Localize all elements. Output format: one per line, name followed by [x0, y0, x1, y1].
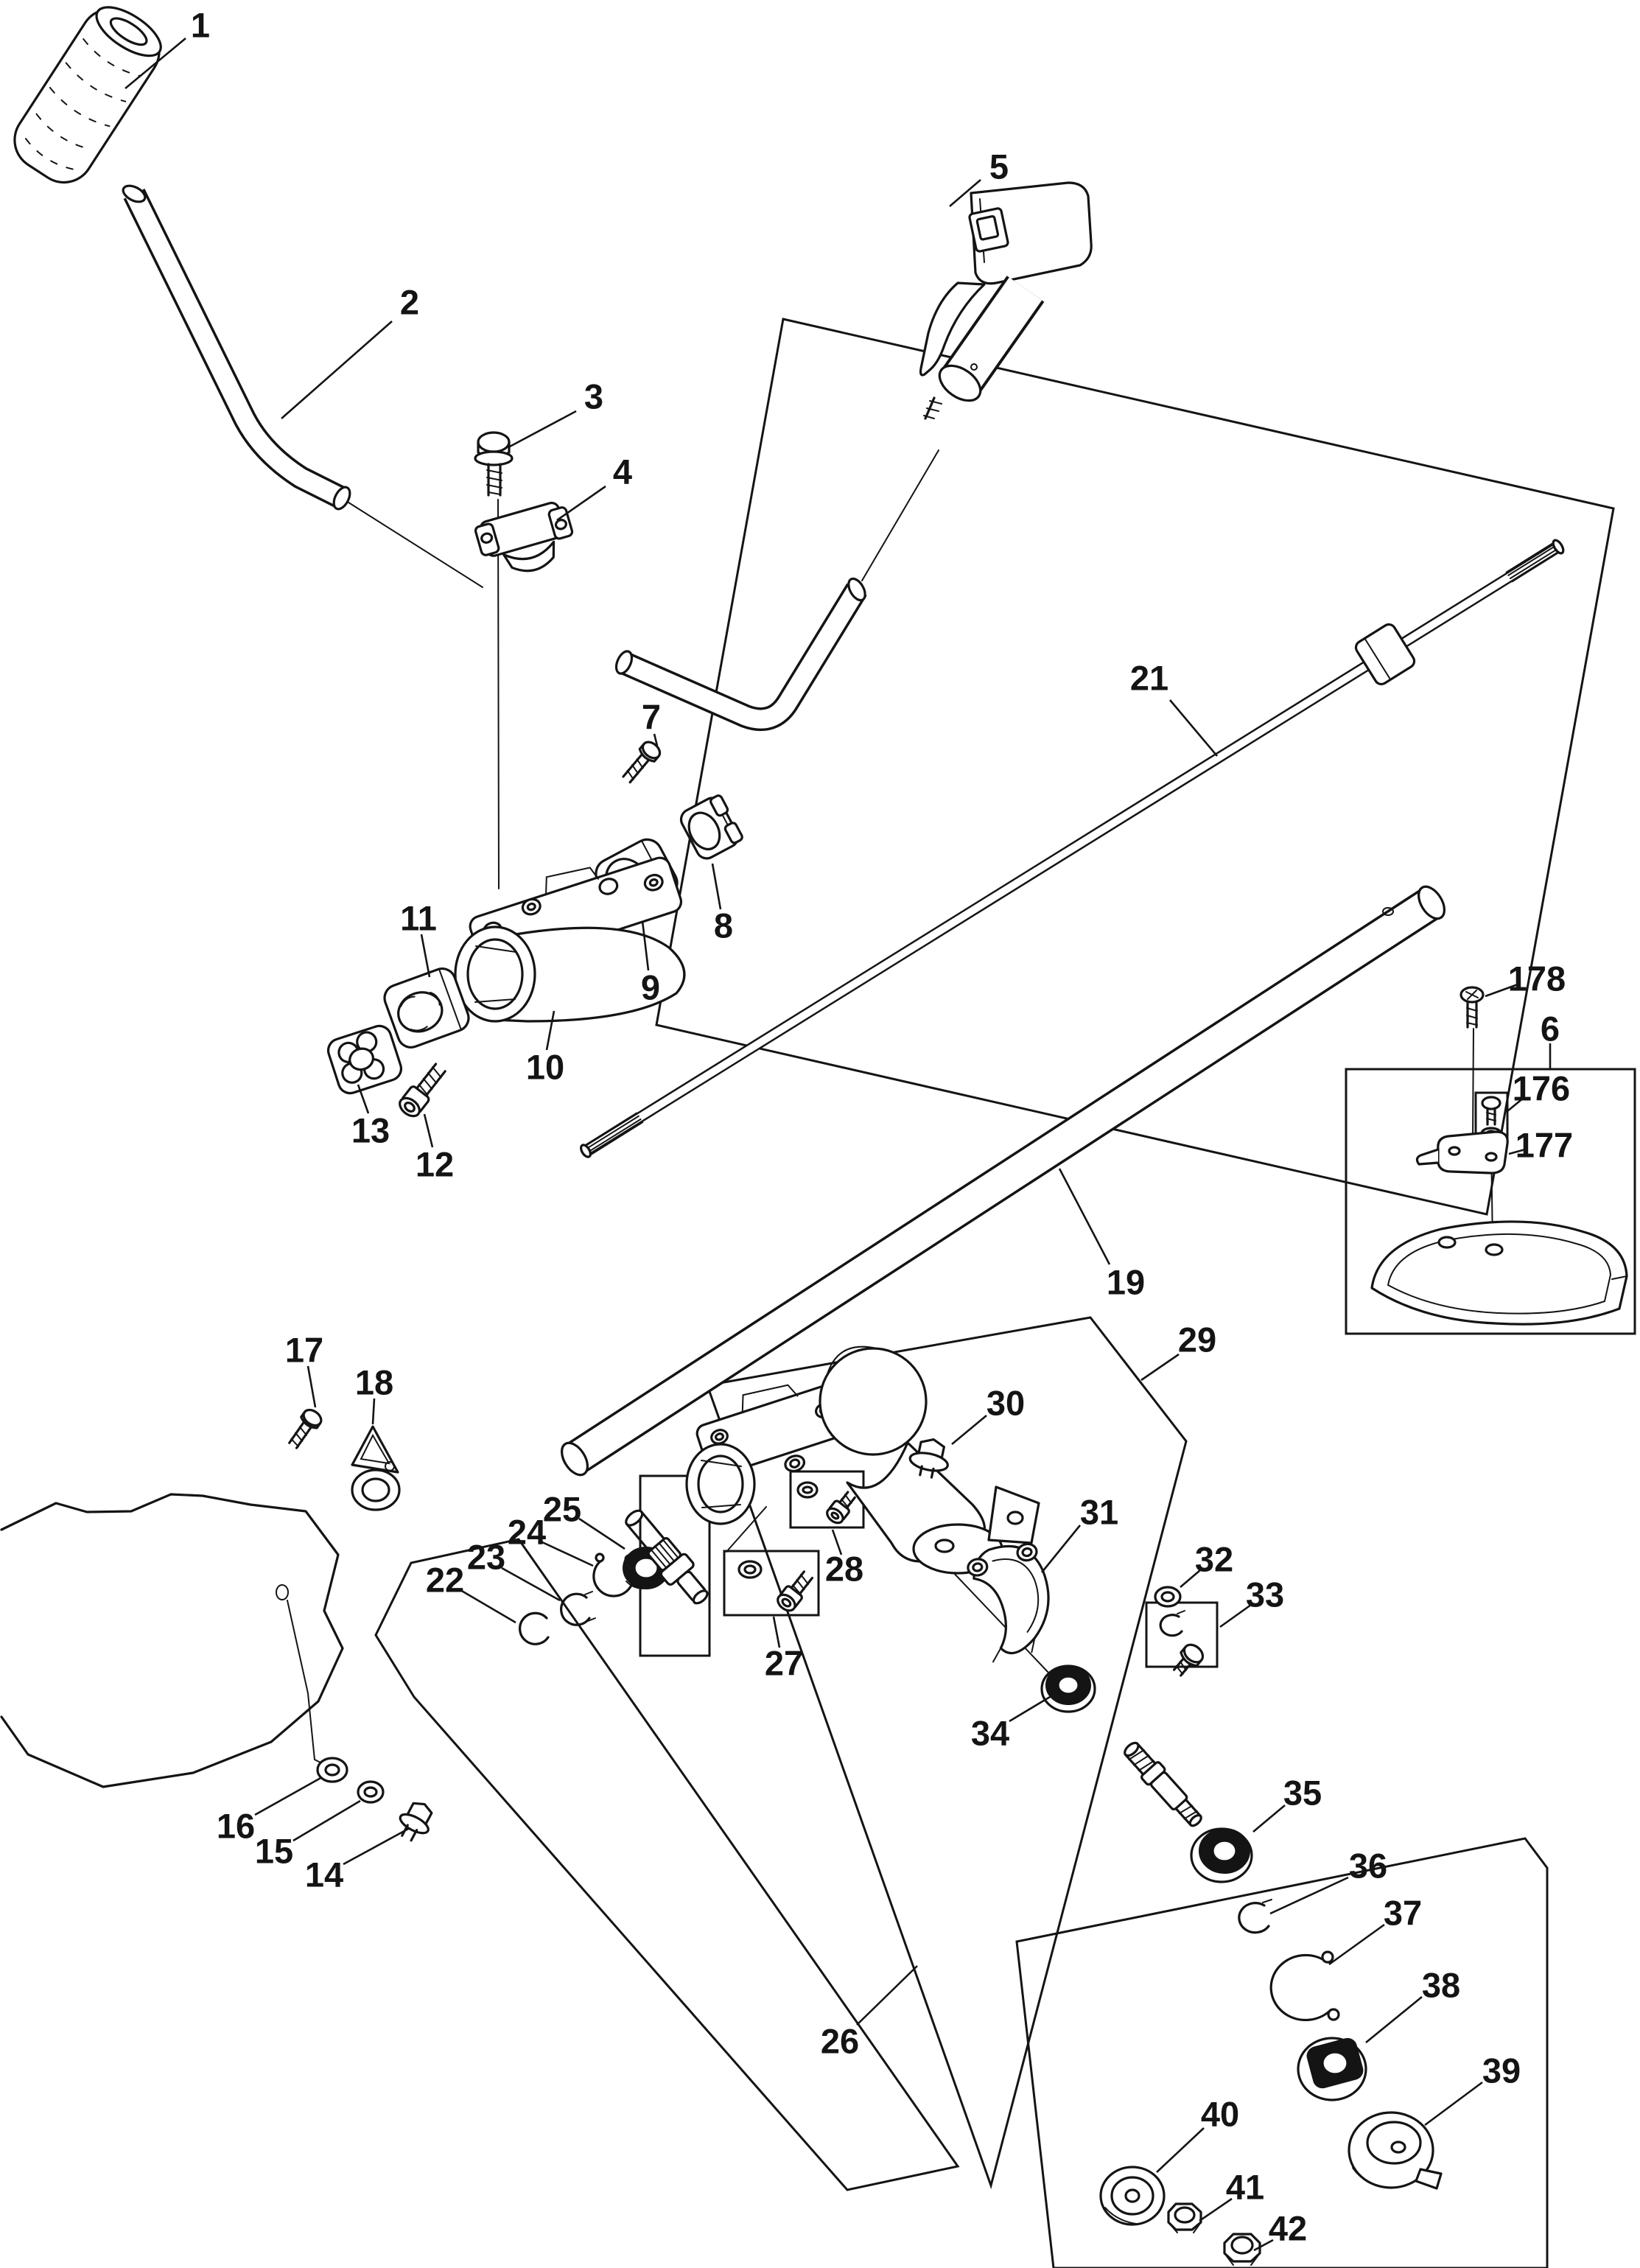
- part-label-3: 3: [584, 377, 603, 416]
- part-guard-shield: [1372, 1222, 1627, 1324]
- part-label-17: 17: [285, 1331, 323, 1370]
- part-label-176: 176: [1513, 1069, 1570, 1108]
- part-label-41: 41: [1226, 2168, 1264, 2207]
- part-washer-15: [358, 1782, 383, 1802]
- leader-line-24: [542, 1542, 593, 1566]
- part-label-177: 177: [1515, 1126, 1573, 1165]
- part-label-35: 35: [1283, 1774, 1322, 1813]
- part-label-12: 12: [416, 1145, 454, 1184]
- part-label-1: 1: [191, 6, 210, 45]
- part-screw-178: [1461, 987, 1483, 1027]
- leader-line-3: [510, 411, 576, 447]
- part-label-40: 40: [1201, 2095, 1239, 2134]
- leader-line-34: [1009, 1695, 1054, 1721]
- part-label-4: 4: [613, 452, 632, 491]
- leader-line-22: [460, 1590, 516, 1623]
- part-label-16: 16: [217, 1807, 255, 1846]
- part-bracket-177: [1417, 1132, 1507, 1173]
- part-label-14: 14: [305, 1855, 343, 1894]
- part-label-25: 25: [543, 1490, 581, 1529]
- parts-diagram-page: 1234567891011121314151617181921222324252…: [0, 0, 1640, 2268]
- leader-line-31: [1042, 1525, 1080, 1572]
- part-clip-36: [1239, 1900, 1272, 1933]
- part-clip-33: [1160, 1611, 1185, 1636]
- part-label-21: 21: [1130, 659, 1168, 698]
- part-screw-12: [396, 1061, 449, 1120]
- leader-line-21: [1170, 700, 1217, 756]
- part-label-5: 5: [989, 147, 1009, 186]
- exploded-parts-diagram: 1234567891011121314151617181921222324252…: [0, 0, 1640, 2268]
- leader-line-11: [421, 934, 430, 977]
- part-label-39: 39: [1482, 2051, 1521, 2090]
- part-nut-34: [1042, 1666, 1095, 1712]
- part-label-15: 15: [255, 1832, 293, 1871]
- part-washer-32: [1155, 1587, 1180, 1606]
- lower-parts-box: [1017, 1838, 1547, 2268]
- part-bushing-13: [325, 1023, 404, 1096]
- leader-line-8: [712, 864, 721, 909]
- part-label-10: 10: [526, 1048, 564, 1087]
- part-bolt-kit-28: [798, 1483, 858, 1526]
- leader-line-12: [424, 1114, 432, 1147]
- part-spindle-shaft: [1120, 1738, 1207, 1831]
- part-label-28: 28: [825, 1550, 863, 1589]
- part-bolt-14: [393, 1797, 438, 1846]
- leader-line-35: [1253, 1805, 1285, 1832]
- part-label-2: 2: [400, 283, 419, 322]
- leader-line-15: [293, 1801, 360, 1841]
- part-label-13: 13: [351, 1111, 390, 1150]
- engine-silhouette: [1, 1494, 343, 1787]
- leader-line-29: [1141, 1354, 1179, 1380]
- part-label-37: 37: [1384, 1894, 1422, 1933]
- leader-line-39: [1425, 2082, 1482, 2125]
- part-label-29: 29: [1178, 1320, 1216, 1359]
- part-bearing-38: [1298, 2037, 1366, 2100]
- part-label-18: 18: [355, 1363, 393, 1402]
- part-handle-clamp: [474, 500, 580, 583]
- part-label-42: 42: [1269, 2209, 1307, 2248]
- leader-line-16: [255, 1777, 322, 1815]
- part-grip: [4, 0, 172, 194]
- part-label-27: 27: [765, 1644, 803, 1683]
- part-label-9: 9: [641, 968, 660, 1007]
- part-label-19: 19: [1107, 1263, 1145, 1302]
- part-hanger-18: [352, 1427, 399, 1510]
- part-label-6: 6: [1541, 1009, 1560, 1049]
- leader-line-40: [1157, 2128, 1204, 2172]
- part-label-36: 36: [1349, 1847, 1387, 1886]
- part-label-24: 24: [508, 1513, 546, 1552]
- leader-line-18: [373, 1399, 374, 1424]
- part-label-7: 7: [642, 698, 661, 737]
- part-clamp-bolt: [475, 433, 512, 495]
- part-ring-22: [520, 1613, 548, 1644]
- part-number-labels: 1234567891011121314151617181921222324252…: [125, 6, 1573, 2251]
- leader-line-26: [857, 1966, 917, 2025]
- part-nut-41: [1168, 2204, 1201, 2233]
- part-screw-33: [1169, 1641, 1206, 1679]
- part-disc-40: [1101, 2167, 1164, 2225]
- part-label-34: 34: [971, 1714, 1009, 1753]
- leader-line-17: [308, 1366, 315, 1407]
- part-label-30: 30: [987, 1384, 1025, 1423]
- leader-line-30: [952, 1415, 987, 1444]
- part-cover-31: [965, 1539, 1061, 1663]
- part-label-26: 26: [821, 2022, 859, 2061]
- part-label-11: 11: [400, 899, 437, 938]
- leader-line-37: [1329, 1925, 1384, 1964]
- assembly-band-26: [376, 1539, 958, 2190]
- leader-line-14: [343, 1828, 410, 1864]
- part-label-33: 33: [1246, 1575, 1284, 1614]
- part-bolt-kit-27: [739, 1561, 816, 1614]
- part-label-32: 32: [1195, 1540, 1233, 1579]
- part-left-handle-pipe: [121, 183, 354, 512]
- leader-line-4: [557, 486, 606, 520]
- part-label-178: 178: [1508, 959, 1566, 998]
- leader-line-19: [1059, 1169, 1110, 1264]
- leader-line-2: [281, 321, 392, 419]
- part-label-23: 23: [467, 1538, 505, 1577]
- part-label-22: 22: [426, 1561, 464, 1600]
- part-screw-17: [285, 1407, 324, 1451]
- part-snap-ring-37: [1271, 1952, 1339, 2020]
- part-label-31: 31: [1080, 1493, 1118, 1532]
- part-label-8: 8: [714, 906, 733, 945]
- leader-line-25: [579, 1519, 625, 1549]
- bolt-kit-box-27: [724, 1551, 819, 1615]
- part-label-38: 38: [1422, 1966, 1460, 2005]
- part-bearing-35: [1191, 1829, 1252, 1882]
- leader-line-38: [1366, 1997, 1422, 2043]
